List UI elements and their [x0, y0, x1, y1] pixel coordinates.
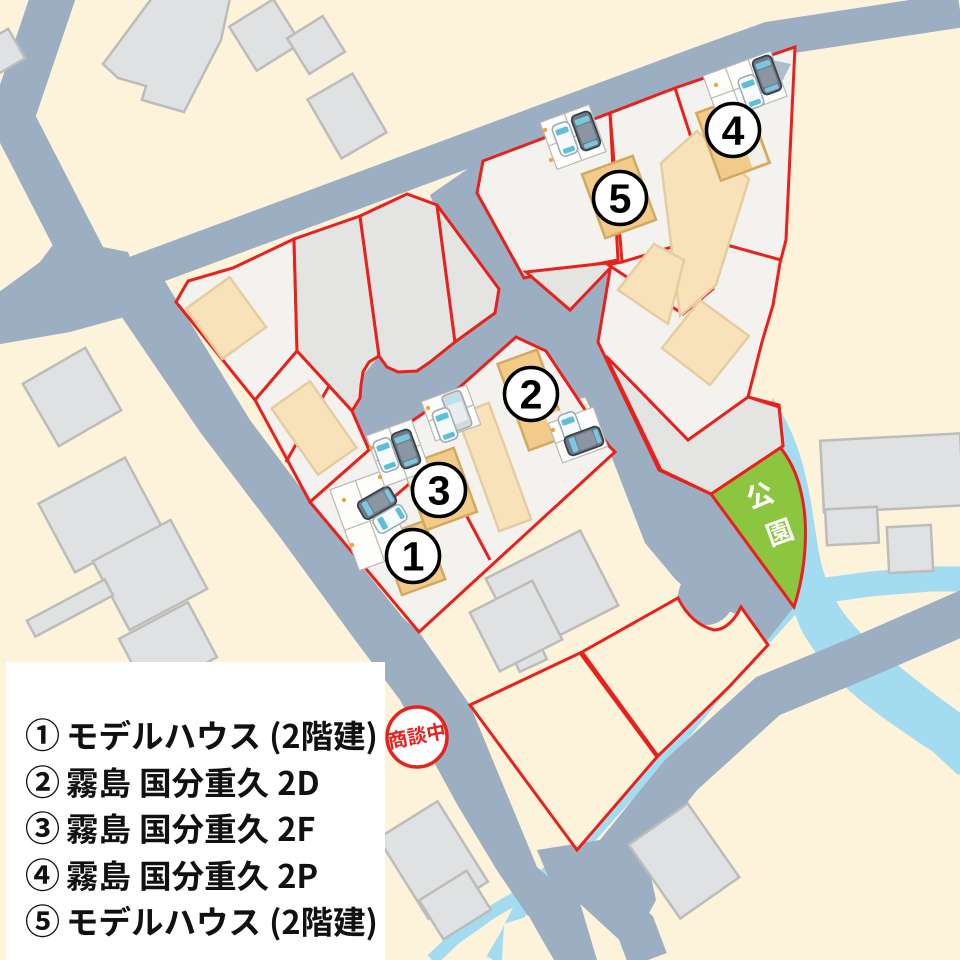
svg-text:1: 1 [402, 534, 425, 580]
svg-text:5: 5 [609, 176, 632, 222]
svg-text:4: 4 [722, 108, 745, 154]
svg-text:3: 3 [428, 468, 451, 514]
svg-text:2: 2 [520, 372, 543, 418]
